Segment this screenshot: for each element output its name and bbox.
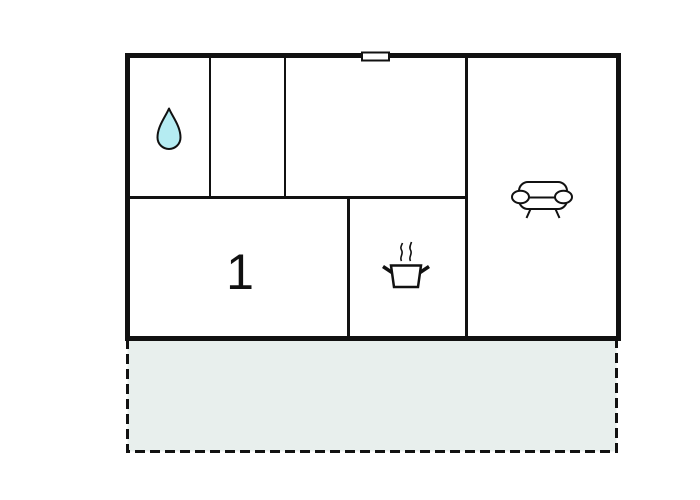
room-number-label: 1 xyxy=(200,246,280,298)
sofa-armrest-right xyxy=(555,191,572,203)
terrace-area xyxy=(128,339,617,452)
sofa-armrest-left xyxy=(512,191,529,203)
window-marker xyxy=(362,53,389,61)
pot-body xyxy=(391,266,421,288)
floor-plan-drawing xyxy=(0,0,700,500)
floor-plan-page: 1 xyxy=(0,0,700,500)
